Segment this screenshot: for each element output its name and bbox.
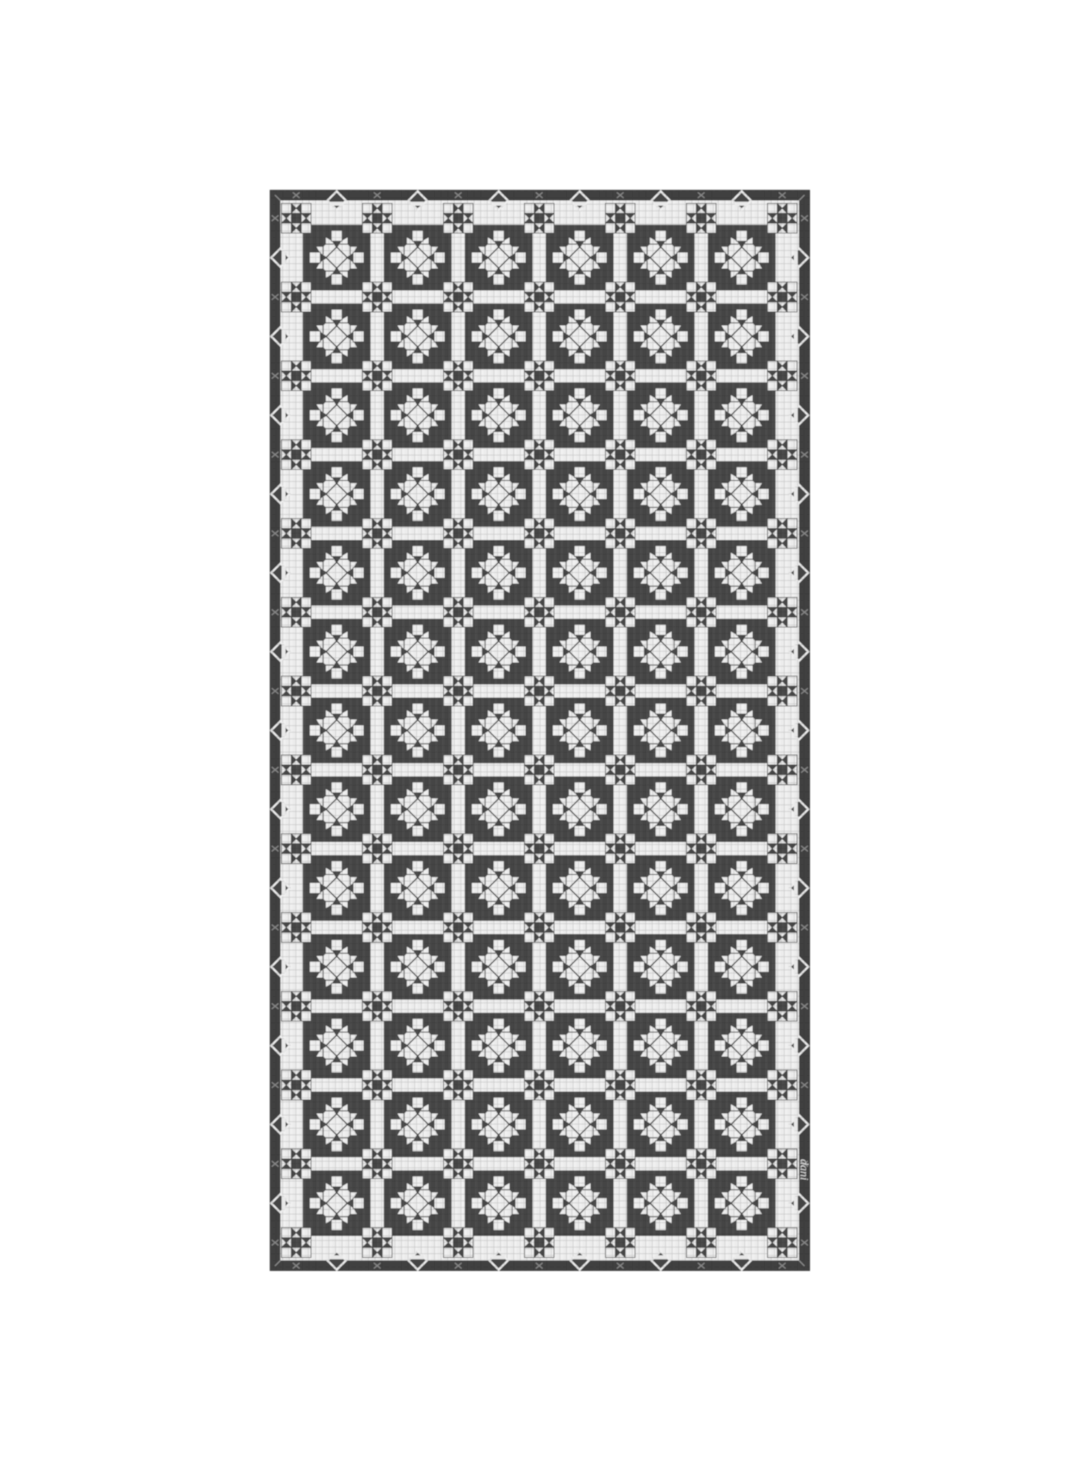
svg-text:dani: dani	[798, 1159, 812, 1180]
